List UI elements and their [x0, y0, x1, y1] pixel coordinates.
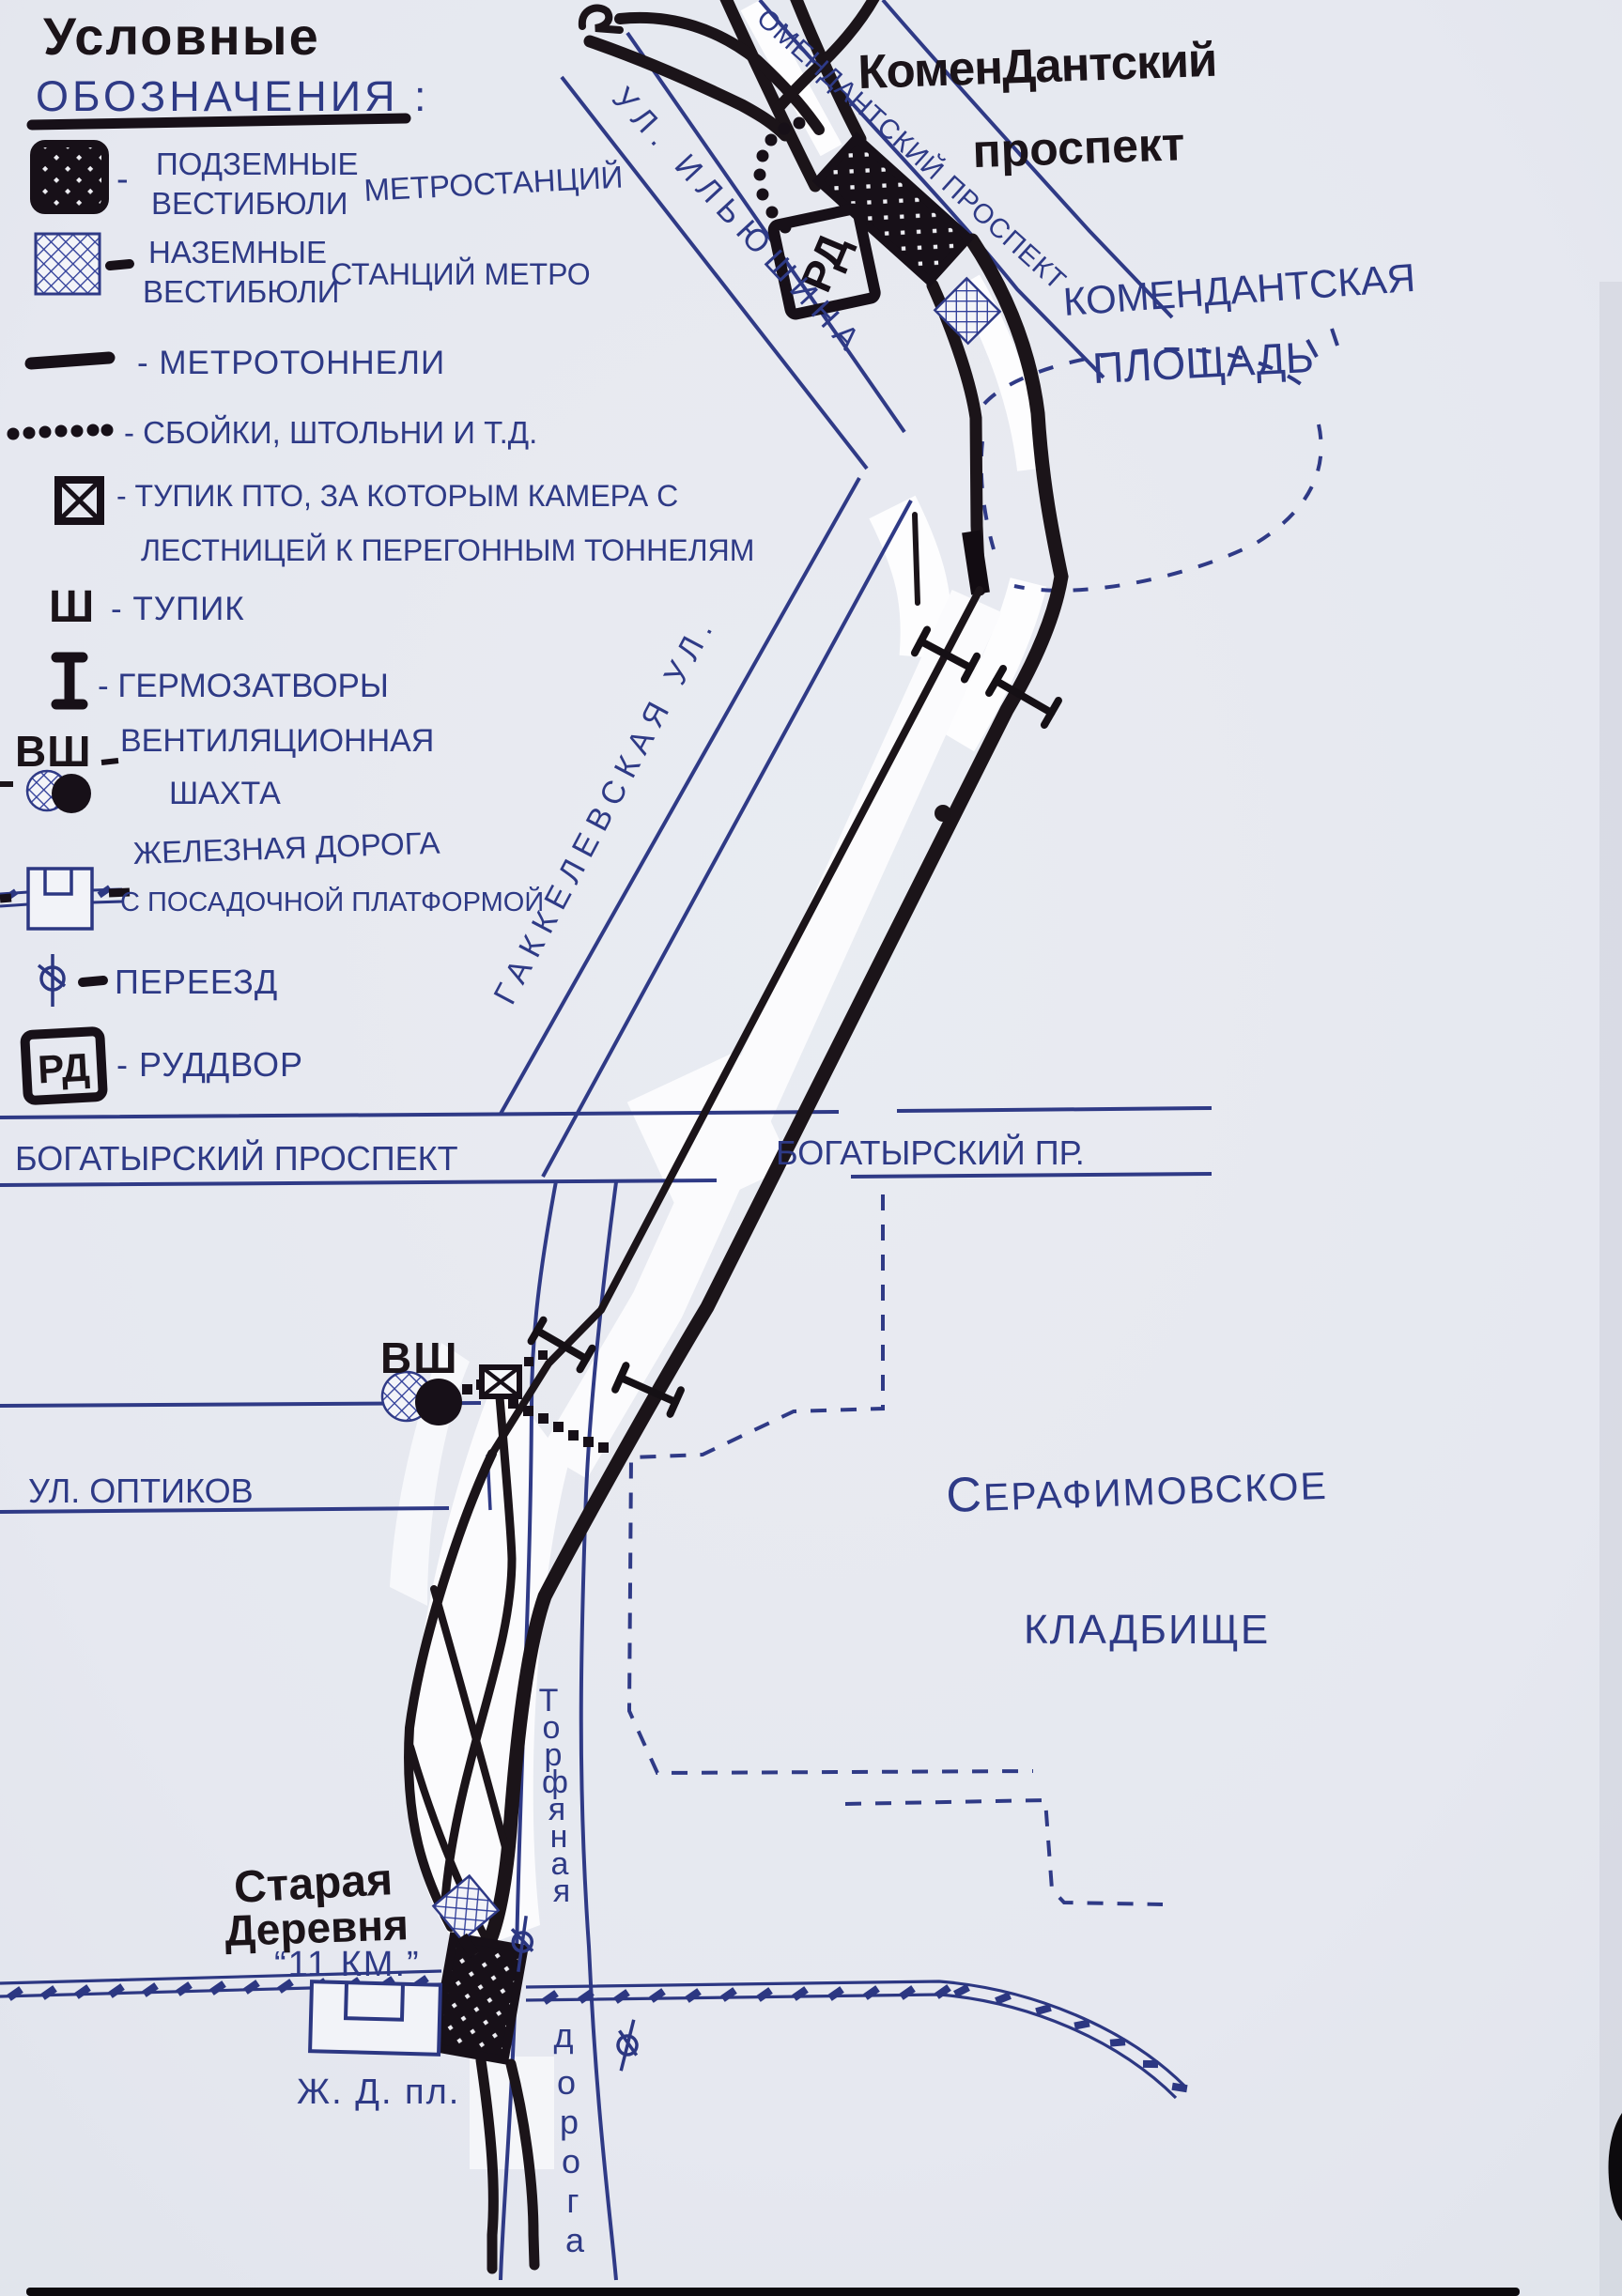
- svg-text:проспект: проспект: [972, 117, 1186, 177]
- svg-text:о: о: [557, 2063, 576, 2102]
- svg-text:ПЕРЕЕЗД: ПЕРЕЕЗД: [115, 963, 278, 1001]
- svg-text:р: р: [560, 2103, 579, 2141]
- svg-text:ОБОЗНАЧЕНИЯ :: ОБОЗНАЧЕНИЯ :: [36, 72, 430, 120]
- svg-text:Ш: Ш: [49, 582, 94, 632]
- svg-text:- ТУПИК: - ТУПИК: [111, 591, 245, 627]
- svg-text:д: д: [553, 2016, 573, 2055]
- svg-text:я: я: [553, 1873, 570, 1909]
- svg-text:ВЕСТИБЮЛИ: ВЕСТИБЮЛИ: [151, 186, 348, 221]
- svg-text:БОГАТЫРСКИЙ ПР.: БОГАТЫРСКИЙ ПР.: [776, 1133, 1085, 1172]
- svg-text:ВЕНТИЛЯЦИОННАЯ: ВЕНТИЛЯЦИОННАЯ: [120, 723, 434, 759]
- svg-text:ВЕСТИБЮЛИ: ВЕСТИБЮЛИ: [143, 274, 340, 309]
- svg-text:УЛ. ОПТИКОВ: УЛ. ОПТИКОВ: [28, 1472, 254, 1510]
- svg-text:С ПОСАДОЧНОЙ ПЛАТФОРМОЙ: С ПОСАДОЧНОЙ ПЛАТФОРМОЙ: [120, 886, 544, 917]
- svg-text:ПОДЗЕМНЫЕ: ПОДЗЕМНЫЕ: [156, 146, 359, 181]
- svg-text:-: -: [116, 160, 129, 199]
- svg-text:- РУДДВОР: - РУДДВОР: [116, 1045, 303, 1084]
- svg-text:РД: РД: [37, 1045, 91, 1092]
- svg-text:“11 КМ.”: “11 КМ.”: [274, 1945, 421, 1984]
- svg-text:- СБОЙКИ, ШТОЛЬНИ И Т.Д.: - СБОЙКИ, ШТОЛЬНИ И Т.Д.: [124, 415, 537, 450]
- svg-text:НАЗЕМНЫЕ: НАЗЕМНЫЕ: [148, 235, 327, 270]
- svg-text:г: г: [566, 2181, 579, 2220]
- svg-text:- ГЕРМОЗАТВОРЫ: - ГЕРМОЗАТВОРЫ: [98, 668, 389, 704]
- svg-text:КЛАДБИЩЕ: КЛАДБИЩЕ: [1024, 1607, 1270, 1653]
- svg-text:ЛЕСТНИЦЕЙ К ПЕРЕГОННЫМ ТОНН: ЛЕСТНИЦЕЙ К ПЕРЕГОННЫМ ТОННЕЛЯМ: [141, 533, 754, 567]
- svg-text:о: о: [562, 2142, 580, 2180]
- svg-text:СТАНЦИЙ МЕТРО: СТАНЦИЙ МЕТРО: [331, 257, 591, 291]
- svg-text:а: а: [565, 2221, 585, 2259]
- svg-text:БОГАТЫРСКИЙ ПРОСПЕКТ: БОГАТЫРСКИЙ ПРОСПЕКТ: [15, 1138, 458, 1178]
- svg-text:ШАХТА: ШАХТА: [169, 776, 281, 811]
- svg-text:ВШ: ВШ: [380, 1333, 458, 1382]
- svg-text:- ТУПИК ПТО, ЗА КОТОРЫМ КАМЕР: - ТУПИК ПТО, ЗА КОТОРЫМ КАМЕРА С: [116, 479, 678, 513]
- svg-text:ВШ: ВШ: [15, 727, 91, 776]
- svg-text:Условные: Условные: [43, 7, 320, 66]
- svg-text:Ж. Д. пл.: Ж. Д. пл.: [297, 2073, 460, 2112]
- svg-text:- МЕТРОТОННЕЛИ: - МЕТРОТОННЕЛИ: [137, 345, 445, 381]
